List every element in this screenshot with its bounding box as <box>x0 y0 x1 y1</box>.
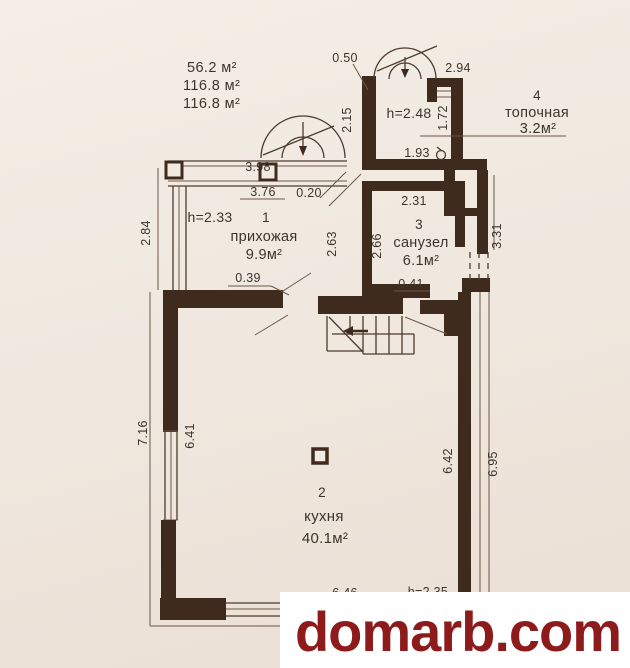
dim-1-72: 1.72 <box>436 105 450 131</box>
kitchen-name: кухня <box>304 508 344 525</box>
dim-2-94: 2.94 <box>445 61 471 75</box>
floorplan-svg: 56.2 м² 116.8 м² 116.8 м² <box>0 0 630 668</box>
bathroom-number: 3 <box>415 217 423 232</box>
kitchen-column <box>313 449 327 463</box>
dim-2-84: 2.84 <box>139 220 153 246</box>
dim-0-50: 0.50 <box>332 51 358 65</box>
hallway-height: h=2.33 <box>187 209 232 225</box>
dim-6-41: 6.41 <box>183 423 197 449</box>
summary-total-area: 56.2 м² <box>187 60 237 76</box>
area-summary: 56.2 м² 116.8 м² 116.8 м² <box>183 60 240 112</box>
bathroom-name: санузел <box>393 235 448 251</box>
summary-area-2: 116.8 м² <box>183 78 240 94</box>
hallway-area: 9.9м² <box>246 247 282 263</box>
dim-0-39: 0.39 <box>235 271 261 285</box>
hallway-name: прихожая <box>230 229 297 245</box>
dim-0-20: 0.20 <box>296 186 322 200</box>
dim-7-16: 7.16 <box>136 420 150 446</box>
dim-3-31: 3.31 <box>490 223 504 249</box>
kitchen-area: 40.1м² <box>302 530 348 547</box>
dim-2-31: 2.31 <box>401 194 427 208</box>
dim-3-76: 3.76 <box>250 185 276 199</box>
hallway-number: 1 <box>262 210 270 225</box>
dim-0-41: 0.41 <box>398 277 424 291</box>
dim-2-63: 2.63 <box>325 231 339 257</box>
bathroom-area: 6.1м² <box>403 253 439 269</box>
boiler-number: 4 <box>533 88 541 103</box>
kitchen-number: 2 <box>318 485 326 500</box>
post-column <box>166 162 182 178</box>
dim-6-95: 6.95 <box>486 451 500 477</box>
dim-2-66: 2.66 <box>370 233 384 259</box>
boiler-area: 3.2м² <box>520 121 556 137</box>
watermark: domarb.com <box>280 592 630 668</box>
floorplan-photo: 56.2 м² 116.8 м² 116.8 м² <box>0 0 630 668</box>
dim-6-42: 6.42 <box>441 448 455 474</box>
dim-2-15: 2.15 <box>340 107 354 133</box>
boiler-height: h=2.48 <box>386 105 431 121</box>
dim-1-93: 1.93 <box>404 146 430 160</box>
dim-3-98: 3.98 <box>245 160 271 174</box>
watermark-text: domarb.com <box>295 600 621 663</box>
boiler-name: топочная <box>505 105 569 121</box>
summary-area-3: 116.8 м² <box>183 96 240 112</box>
